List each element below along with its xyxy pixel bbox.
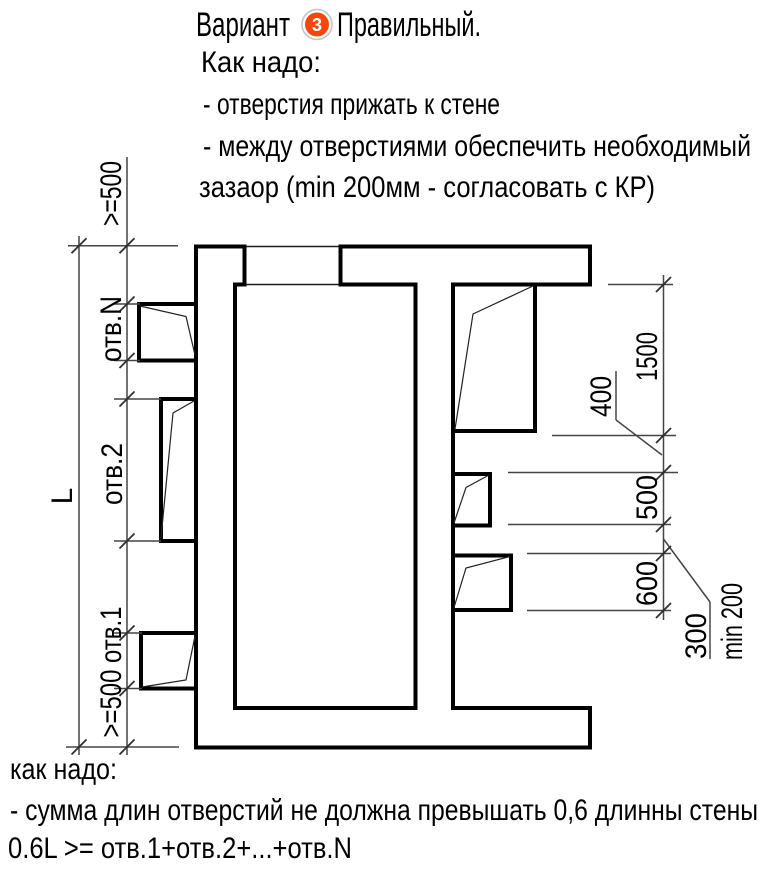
svg-text:min 200: min 200 <box>716 583 749 660</box>
svg-text:1500: 1500 <box>631 332 664 381</box>
svg-text:>=500 отв.1: >=500 отв.1 <box>95 607 128 738</box>
svg-text:300: 300 <box>680 613 713 659</box>
svg-text:600: 600 <box>631 561 664 606</box>
svg-text:0.6L >= отв.1+отв.2+...+отв.N: 0.6L >= отв.1+отв.2+...+отв.N <box>8 832 352 865</box>
svg-text:3: 3 <box>312 15 322 35</box>
svg-text:L: L <box>46 488 79 505</box>
svg-text:- отверстия прижать к стене: - отверстия прижать к стене <box>203 88 500 121</box>
svg-text:зазаор (min 200мм - согласоват: зазаор (min 200мм - согласовать с КР) <box>199 171 655 204</box>
svg-text:>=500: >=500 <box>95 161 128 226</box>
svg-text:Вариант: Вариант <box>196 6 290 44</box>
svg-text:отв.N: отв.N <box>95 296 128 362</box>
svg-text:как надо:: как надо: <box>10 753 117 786</box>
svg-text:Правильный.: Правильный. <box>337 6 481 44</box>
svg-text:- сумма длин отверстий не долж: - сумма длин отверстий не должна превыша… <box>10 794 758 827</box>
svg-text:400: 400 <box>585 376 618 417</box>
svg-text:Как надо:: Как надо: <box>201 46 321 79</box>
svg-text:- между отверстиями обеспечить: - между отверстиями обеспечить необходим… <box>203 130 751 163</box>
svg-text:500: 500 <box>631 475 664 520</box>
svg-text:отв.2: отв.2 <box>96 443 129 505</box>
